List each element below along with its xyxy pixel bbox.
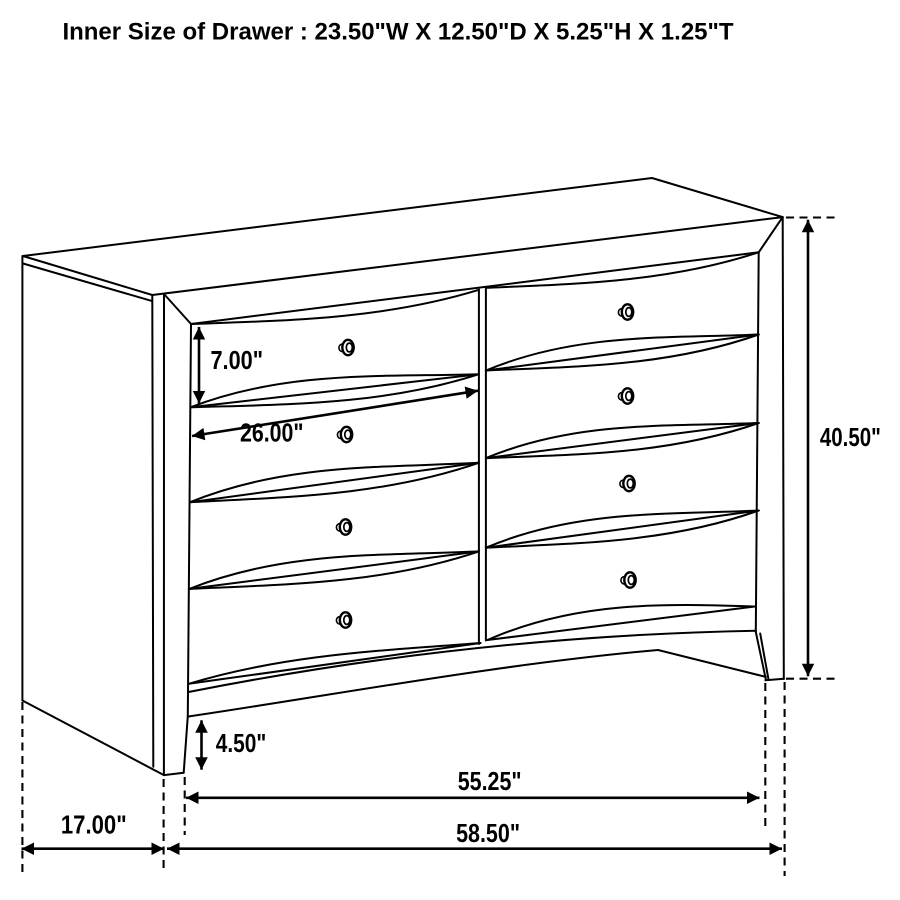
svg-text:55.25": 55.25" xyxy=(458,768,522,796)
svg-text:26.00": 26.00" xyxy=(240,419,304,447)
svg-text:7.00": 7.00" xyxy=(211,347,264,375)
svg-text:Inner Size of Drawer : 23.50"W: Inner Size of Drawer : 23.50"W X 12.50"D… xyxy=(62,19,733,46)
svg-text:4.50": 4.50" xyxy=(216,730,267,758)
svg-text:17.00": 17.00" xyxy=(61,811,127,839)
svg-text:58.50": 58.50" xyxy=(456,820,520,848)
svg-text:40.50": 40.50" xyxy=(820,424,881,452)
